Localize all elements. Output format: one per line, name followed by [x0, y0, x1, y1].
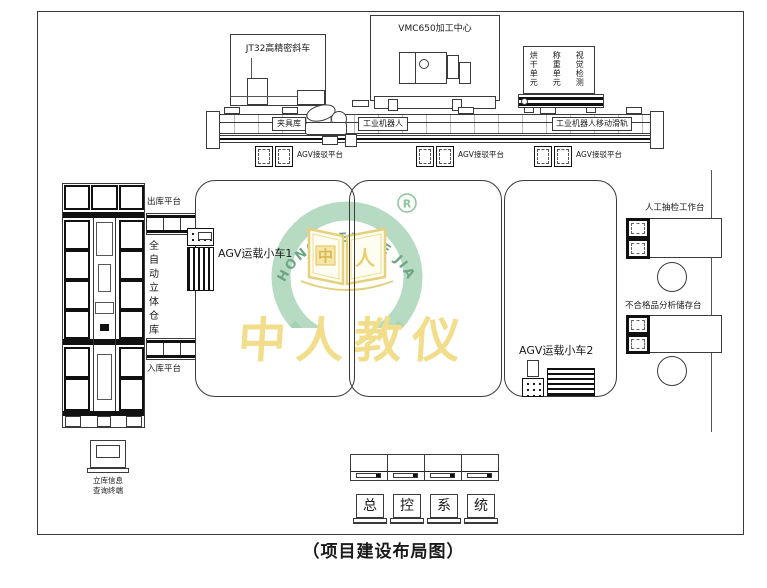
- outbound-platform-label: 出库平台: [147, 198, 181, 208]
- lathe-step-block: [297, 90, 325, 105]
- desk-slot: [467, 473, 492, 478]
- stacker-crane-head: [96, 222, 113, 256]
- manual-check-label: 人工抽检工作台: [645, 204, 705, 214]
- desk-slot-cap: [413, 474, 417, 477]
- storage-cell: [119, 378, 144, 411]
- storage-cell: [64, 250, 90, 280]
- unit-foot-left: [524, 107, 534, 113]
- console-pedestal: [464, 518, 498, 524]
- stacker-crane-cross: [95, 302, 114, 314]
- storage-cell: [119, 250, 144, 280]
- console-unit-kong: 控: [393, 494, 421, 518]
- conveyor-divider: [163, 343, 164, 355]
- rail-track-strip: [213, 138, 655, 140]
- conveyor-divider: [163, 218, 164, 230]
- warehouse-foot: [65, 416, 81, 427]
- robot-base-bracket-2: [345, 134, 357, 147]
- robot-slide-rail-label: 工业机器人移动滑轨: [552, 117, 632, 131]
- right-wall-line: [711, 170, 712, 432]
- unit-label-weighing: 称重单元: [552, 51, 561, 91]
- conveyor-divider: [180, 218, 181, 230]
- unit-foot-right: [586, 107, 596, 113]
- console-desk-1: [350, 454, 388, 481]
- desk-line: [425, 471, 461, 472]
- agv1-charge-station: [187, 228, 214, 246]
- aisle-rail-right: [115, 218, 116, 411]
- unit-conveyor-belt-top: [519, 97, 603, 100]
- defect-storage-tray-1: [626, 315, 650, 335]
- console-unit-zong: 总: [356, 494, 384, 518]
- manual-check-stool: [657, 262, 687, 292]
- vmc-base-foot-left: [388, 99, 398, 111]
- warehouse-name-vertical: 全自动立体仓库: [146, 240, 158, 340]
- storage-cell: [64, 310, 90, 339]
- manual-check-tray-1: [626, 218, 650, 239]
- console-desk-2: [387, 454, 425, 481]
- agv2-marker: [527, 360, 539, 377]
- storage-cell: [119, 310, 144, 339]
- terminal-label-line2: 查询终端: [81, 487, 135, 496]
- storage-cell: [64, 378, 90, 411]
- vmc-machine-divider: [415, 52, 416, 84]
- console-desk-3: [424, 454, 462, 481]
- dock-platform-2a: [416, 146, 434, 167]
- storage-cell: [119, 185, 144, 210]
- defect-storage-label: 不合格品分析储存台: [625, 302, 702, 312]
- rail-mount-3: [458, 107, 474, 114]
- robot-carriage: [305, 122, 347, 135]
- dock-label-1: AGV接驳平台: [297, 151, 343, 160]
- vmc-label: VMC650加工中心: [372, 22, 498, 36]
- desk-slot-cap: [487, 474, 491, 477]
- rail-mount-4: [540, 107, 556, 114]
- agv-loop-2: [349, 180, 502, 397]
- stacker-crane-block: [100, 324, 109, 331]
- desk-line: [351, 471, 387, 472]
- conveyor-strip: [147, 340, 195, 343]
- console-unit-xi: 系: [430, 494, 458, 518]
- warehouse-foot: [126, 416, 142, 427]
- console-desk-4: [461, 454, 499, 481]
- agv2-charge-station: [522, 378, 544, 397]
- vmc-attachment-2: [459, 62, 471, 84]
- lathe-detail-block: [247, 78, 268, 105]
- rail-end-cap-left: [206, 111, 220, 149]
- rail-mount-2: [282, 107, 298, 114]
- desk-slot-cap: [450, 474, 454, 477]
- storage-cell: [64, 185, 90, 210]
- agv-cart-2-hatch: [547, 368, 595, 396]
- console-pedestal: [390, 518, 424, 524]
- defect-storage-tray-2: [626, 334, 650, 354]
- vmc-spindle-circle: [419, 59, 429, 69]
- desk-line: [462, 471, 498, 472]
- rail-mount-1: [224, 107, 240, 114]
- agv-cart-2-label: AGV运载小车2: [519, 345, 593, 358]
- storage-cell: [119, 280, 144, 310]
- desk-slot: [430, 473, 455, 478]
- agv-loop-3: [504, 180, 617, 397]
- warehouse-foot: [97, 416, 111, 427]
- storage-cell: [91, 185, 118, 210]
- desk-slot: [356, 473, 381, 478]
- fixture-store-label: 夹具库: [272, 117, 306, 131]
- terminal-base: [87, 468, 129, 473]
- storage-cell: [119, 347, 144, 378]
- conveyor-divider: [180, 343, 181, 355]
- desk-line: [388, 471, 424, 472]
- rail-lower-track: [210, 135, 658, 143]
- dock-platform-1a: [255, 146, 273, 167]
- terminal-label-line1: 立库信息: [81, 477, 135, 486]
- warehouse-body: [62, 183, 145, 428]
- unit-conveyor-belt-bottom: [519, 103, 603, 106]
- desk-slot-cap: [376, 474, 380, 477]
- inbound-conveyor: [146, 338, 196, 360]
- vmc-attachment-1: [447, 55, 459, 79]
- agv1-station-panel: [198, 232, 212, 240]
- agv-loop-1: [195, 180, 355, 397]
- aisle-rail-left: [93, 218, 94, 411]
- lathe-label: JT32高精密斜车: [232, 42, 324, 56]
- unit-label-vision: 视觉检测: [575, 51, 584, 91]
- storage-cell: [119, 220, 144, 250]
- stacker-crane-lower: [97, 354, 112, 400]
- industrial-robot-label: 工业机器人: [358, 117, 408, 131]
- layout-drawing: ZHONG REN KE JIAO R 中 人 中人教仪 JT32高精密斜车 V…: [0, 0, 767, 588]
- inbound-platform-label: 入库平台: [147, 365, 181, 375]
- storage-cell: [64, 280, 90, 310]
- conveyor-strip: [147, 355, 195, 358]
- rail-end-cap-right: [650, 111, 664, 149]
- conveyor-strip: [147, 215, 195, 218]
- defect-storage-stool: [657, 356, 687, 386]
- stacker-crane-mast: [98, 264, 111, 292]
- dock-label-3: AGV接驳平台: [576, 151, 622, 160]
- drawing-caption: （项目建设布局图）: [0, 543, 767, 563]
- unit-label-drying: 烘干单元: [529, 51, 538, 91]
- robot-top-bracket: [352, 100, 369, 107]
- warehouse-band-mid: [63, 339, 144, 345]
- unit-conveyor-roller: [521, 98, 528, 105]
- dock-label-2: AGV接驳平台: [458, 151, 504, 160]
- agv-cart-1-label: AGV运载小车1: [218, 248, 292, 261]
- manual-check-tray-2: [626, 238, 650, 259]
- dock-platform-3b: [554, 146, 572, 167]
- storage-cell: [64, 347, 90, 378]
- terminal-screen: [96, 445, 120, 458]
- dock-platform-3a: [534, 146, 552, 167]
- rail-mount-5: [626, 107, 642, 114]
- console-pedestal: [427, 518, 461, 524]
- desk-slot: [393, 473, 418, 478]
- robot-base-bracket-1: [322, 136, 338, 145]
- storage-cell: [64, 220, 90, 250]
- console-unit-tong: 统: [467, 494, 495, 518]
- dock-platform-2b: [436, 146, 454, 167]
- warehouse-band-top: [63, 212, 144, 218]
- lathe-detail-line: [251, 58, 252, 78]
- agv-cart-1-hatch: [187, 247, 214, 291]
- unit-conveyor: [518, 94, 604, 108]
- console-pedestal: [353, 518, 387, 524]
- dock-platform-1b: [275, 146, 293, 167]
